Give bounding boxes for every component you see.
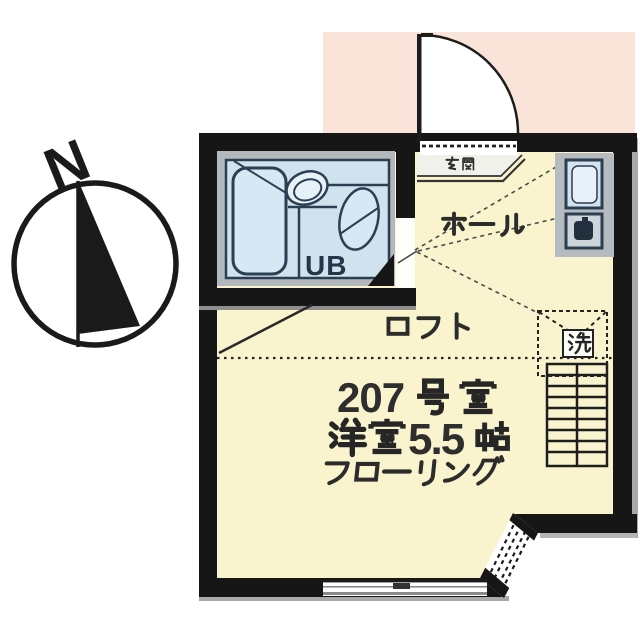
svg-text:UB: UB <box>305 250 347 281</box>
svg-text:5.5: 5.5 <box>408 415 465 464</box>
svg-text:207: 207 <box>337 374 404 421</box>
